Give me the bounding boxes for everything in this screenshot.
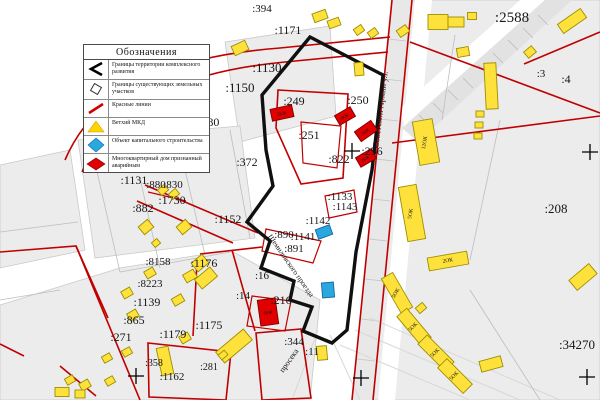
parcel-label: :865 (123, 313, 144, 327)
legend-box: Обозначения Границы территории комплексн… (83, 44, 210, 173)
yellow-building (55, 388, 69, 397)
legend-item-label: Ветхий МКД (109, 118, 209, 135)
capital-construction-layer (315, 225, 334, 298)
parcel-label: :1176 (191, 256, 218, 270)
legend-item-label: Объект капитального строительства (109, 136, 209, 153)
legend-item-label: Границы существующих земельных участков (109, 80, 209, 99)
yellow-building (476, 111, 484, 117)
legend-item-label: Красные линии (109, 100, 209, 117)
existing-parcel-boundary-icon (84, 80, 109, 99)
yellow-building (448, 17, 464, 27)
capital-construction-object (321, 282, 334, 298)
parcel-label: :3 (537, 68, 546, 80)
parcel-label: :1131 (121, 173, 148, 187)
parcel-label: :830 (163, 179, 183, 191)
parcel-label: :249 (283, 94, 304, 108)
parcel-label: :372 (236, 155, 257, 169)
yellow-building (354, 62, 364, 76)
yellow-building (484, 63, 498, 110)
parcel-label: :394 (252, 3, 272, 15)
legend-item-existing-parcels: Границы существующих земельных участков (84, 80, 209, 100)
parcel-label: :1143 (333, 201, 358, 213)
yellow-building (312, 9, 328, 22)
capital-construction-icon (84, 136, 109, 153)
red-line-icon (84, 100, 109, 117)
yellow-building (367, 28, 378, 39)
parcel-label: :16 (255, 270, 270, 282)
parcel-label: :1130 (252, 60, 281, 75)
parcel-label: :1162 (160, 371, 185, 383)
yellow-building (353, 25, 364, 36)
emergency-building-icon (84, 154, 109, 173)
legend-item-dilapidated-mkd: Ветхий МКД (84, 118, 209, 136)
parcel-label: :251 (298, 128, 319, 142)
legend-item-red-lines: Красные линии (84, 100, 209, 118)
yellow-building (327, 17, 341, 29)
yellow-building (428, 15, 448, 30)
yellow-building (468, 13, 477, 20)
parcel-label: :4 (561, 72, 570, 86)
parcel-label: :1152 (215, 212, 242, 226)
legend-item-development-boundary: Границы территории комплексного развития (84, 60, 209, 80)
parcel-label: :271 (110, 330, 131, 344)
parcel-label: :1179 (160, 327, 187, 341)
parcel-label: :11 (305, 346, 319, 358)
parcel-label: :1141 (291, 231, 316, 243)
parcel-label: :250 (347, 93, 368, 107)
parcel-label: :1171 (275, 23, 302, 37)
parcel-label: :14 (236, 290, 251, 302)
parcel-label: :1175 (196, 318, 223, 332)
yellow-building (474, 133, 482, 139)
legend-item-label: Границы территории комплексного развития (109, 60, 209, 79)
parcel-label: :1142 (306, 215, 331, 227)
yellow-building (75, 390, 85, 398)
yellow-building (456, 47, 469, 58)
parcel-label: :822 (328, 152, 349, 166)
yellow-building (475, 122, 483, 128)
parcel-label: :34270 (559, 337, 595, 352)
legend-title: Обозначения (84, 45, 209, 60)
development-boundary-line-icon (84, 60, 109, 79)
parcel-label: :216 (270, 293, 291, 307)
parcel-label: :882 (132, 201, 153, 215)
legend-item-capital-construction: Объект капитального строительства (84, 136, 209, 154)
parcel-label: :1139 (134, 295, 161, 309)
parcel-label: :8223 (137, 278, 163, 290)
parcel-label: :344 (284, 336, 304, 348)
dilapidated-building-icon (84, 118, 109, 135)
parcel-label: :1150 (225, 80, 254, 95)
parcel-label: :2588 (495, 10, 529, 26)
parcel-label: :358 (145, 358, 163, 369)
legend-item-emergency-mkd: Многоквартирный дом признанный аварийным (84, 154, 209, 173)
cadastral-map-view: :394:1171:2588:1130:1150:1180:249:250:25… (0, 0, 600, 400)
legend-item-label: Многоквартирный дом признанный аварийным (109, 154, 209, 173)
parcel-label: :281 (200, 362, 218, 373)
parcel-label: :8158 (145, 256, 171, 268)
parcel-label: :208 (544, 201, 567, 216)
parcel-label: :1730 (158, 193, 185, 207)
